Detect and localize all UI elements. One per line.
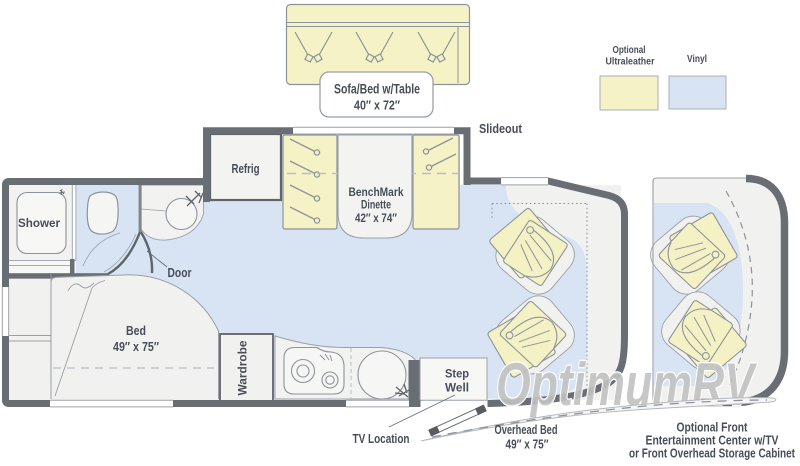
svg-text:BenchMark: BenchMark (349, 187, 405, 199)
svg-text:Slideout: Slideout (479, 122, 523, 136)
svg-text:Step: Step (445, 367, 469, 381)
svg-text:40″ x 72″: 40″ x 72″ (354, 98, 400, 113)
svg-text:Shower: Shower (18, 218, 61, 230)
svg-text:49″ x 75″: 49″ x 75″ (113, 340, 159, 354)
svg-text:Sofa/Bed w/Table: Sofa/Bed w/Table (334, 82, 420, 97)
svg-text:TV Location: TV Location (353, 432, 410, 446)
svg-text:Well: Well (445, 381, 469, 395)
svg-text:Optional: Optional (613, 44, 646, 56)
svg-text:Overhead Bed: Overhead Bed (495, 423, 558, 437)
svg-text:Entertainment Center w/TV: Entertainment Center w/TV (646, 434, 780, 448)
svg-text:42″ x 74″: 42″ x 74″ (355, 213, 397, 225)
svg-text:Wardrobe: Wardrobe (236, 340, 250, 395)
svg-text:Vinyl: Vinyl (687, 53, 707, 65)
svg-text:or Front Overhead Storage Cabi: or Front Overhead Storage Cabinet (629, 447, 796, 461)
svg-text:Bed: Bed (126, 324, 146, 338)
svg-text:Ultraleather: Ultraleather (606, 56, 655, 68)
svg-text:49″ x 75″: 49″ x 75″ (506, 438, 549, 452)
svg-text:Door: Door (168, 266, 192, 280)
svg-text:Optional Front: Optional Front (677, 421, 749, 435)
svg-text:Dinette: Dinette (361, 200, 391, 212)
svg-text:Refrig: Refrig (232, 162, 260, 176)
